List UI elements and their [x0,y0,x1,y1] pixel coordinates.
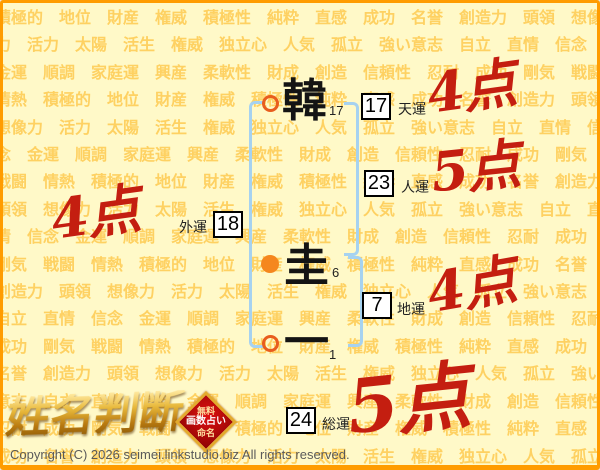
gaiun-label: 外運 [179,217,207,237]
given-char2-marker-ring [262,335,279,352]
gaiun-value-box: 18 [213,211,243,238]
surname-char-marker-ring [262,95,279,112]
jinun-value-box: 23 [364,170,394,197]
jinun-label: 人運 [401,177,429,197]
chiun-score: 4点 [423,252,519,320]
soun-score: 5点 [343,359,472,445]
given-char-marker-dot [261,255,279,273]
name-char-2-strokes: 6 [332,265,339,280]
jinun-bracket [344,102,359,256]
badge-line-3: 命名 [197,428,215,438]
free-naming-badge-text: 無料 画数占い 命名 [187,403,225,441]
site-logo[interactable]: 姓名判断 [3,390,186,440]
name-char-1: 韓 [282,78,327,123]
soun-value-box: 24 [286,407,316,434]
name-char-2: 圭 [284,243,329,288]
gaiun-score: 4点 [48,181,142,247]
name-char-3-strokes: 1 [329,347,336,362]
tenun-score: 4点 [424,55,518,121]
seimei-result-page: 積極的 地位 財産 権威 積極性 純粋 直感 成功 名誉 創造力 頭領 想像力 … [0,0,600,470]
copyright-text: Copyright (C) 2026 seimei.linkstudio.biz… [10,447,350,462]
gaiun-bracket [249,101,264,348]
chiun-value-box: 7 [362,292,392,319]
tenun-value-box: 17 [361,93,391,120]
name-char-1-strokes: 17 [329,103,343,118]
badge-line-2: 画数占い [186,416,226,428]
badge-line-1: 無料 [197,406,215,416]
jinun-score: 5点 [428,137,521,200]
chiun-bracket [348,256,363,347]
name-char-3: 一 [284,319,329,364]
chiun-label: 地運 [397,299,425,319]
tenun-label: 天運 [398,99,426,119]
soun-label: 総運 [322,414,350,434]
